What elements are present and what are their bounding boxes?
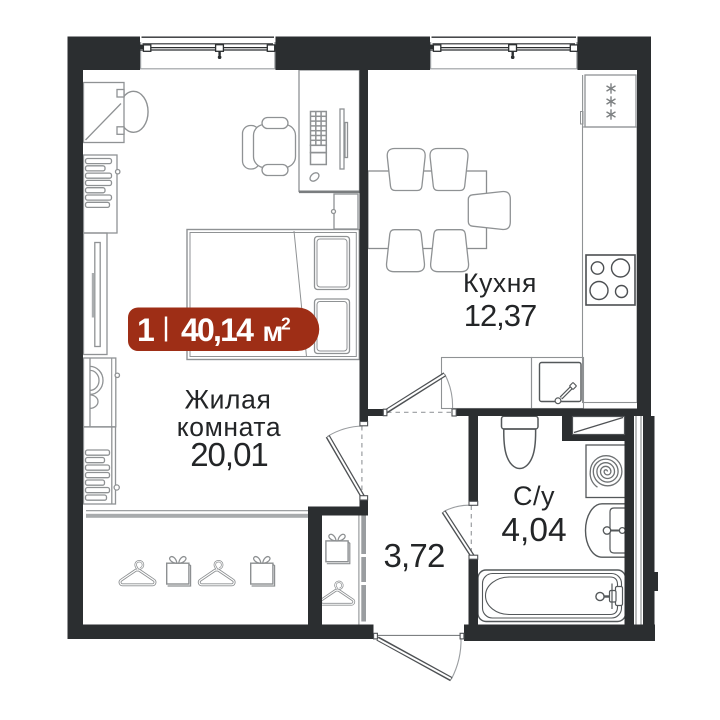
svg-text:12,37: 12,37 [464, 298, 537, 333]
svg-text:Кухня: Кухня [463, 268, 537, 298]
svg-text:4,04: 4,04 [501, 512, 566, 549]
svg-text:1: 1 [137, 312, 155, 348]
svg-text:40,14: 40,14 [181, 312, 254, 348]
svg-text:3,72: 3,72 [383, 537, 444, 574]
svg-text:2: 2 [281, 314, 291, 334]
svg-text:С/у: С/у [513, 481, 555, 511]
svg-text:Жилая: Жилая [185, 385, 272, 415]
svg-text:20,01: 20,01 [190, 436, 268, 473]
